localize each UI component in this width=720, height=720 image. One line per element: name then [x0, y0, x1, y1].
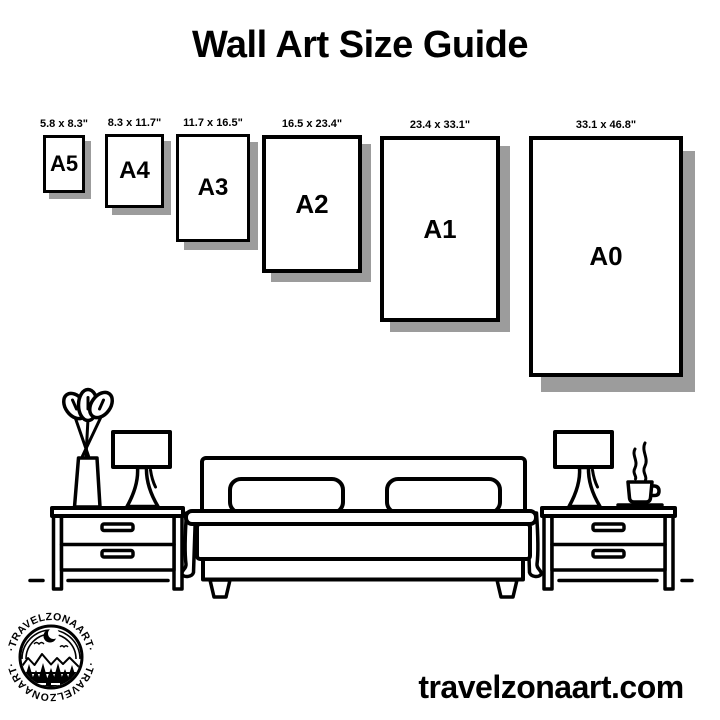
bed-foot-right [497, 580, 517, 597]
steam [634, 449, 636, 479]
wall-art-size-guide-page: Wall Art Size Guide 5.8 x 8.3" A5 8.3 x … [0, 0, 720, 720]
bed-icon [182, 458, 542, 597]
nightstand-left-icon [52, 508, 183, 589]
table-lamp-right-icon [555, 432, 612, 507]
paper-a0-label: A0 [589, 241, 622, 272]
paper-a2: A2 [262, 135, 362, 273]
bed-base [203, 559, 523, 580]
bed-foot-left [210, 580, 230, 597]
paper-a3: A3 [176, 134, 250, 242]
paper-a1-label: A1 [423, 214, 456, 245]
paper-a4-label: A4 [119, 157, 150, 185]
vase [75, 458, 101, 507]
mattress [197, 524, 530, 559]
paper-a5-label: A5 [50, 151, 78, 177]
bedroom-illustration [0, 380, 720, 620]
plant-icon [59, 388, 117, 507]
size-dimensions-a0: 33.1 x 46.8" [509, 119, 703, 131]
paper-a0: A0 [529, 136, 683, 377]
paper-a2-label: A2 [295, 189, 328, 220]
paper-a4: A4 [105, 134, 164, 208]
steam [644, 443, 646, 480]
coffee-cup-icon [618, 443, 662, 505]
paper-a3-label: A3 [198, 174, 229, 202]
brand-logo: ·TRAVELZONAART· ·TRAVELZONAART· [5, 611, 97, 703]
size-dimensions-a1: 23.4 x 33.1" [360, 119, 520, 131]
page-title: Wall Art Size Guide [0, 24, 720, 67]
paper-a5: A5 [43, 135, 85, 193]
table-lamp-left-icon [113, 432, 170, 507]
cup-body [628, 482, 652, 502]
website-url: travelzonaart.com [395, 669, 707, 706]
nightstand-right-icon [542, 508, 675, 589]
paper-a1: A1 [380, 136, 500, 322]
pillow-left [230, 479, 343, 513]
pillow-right [387, 479, 500, 513]
